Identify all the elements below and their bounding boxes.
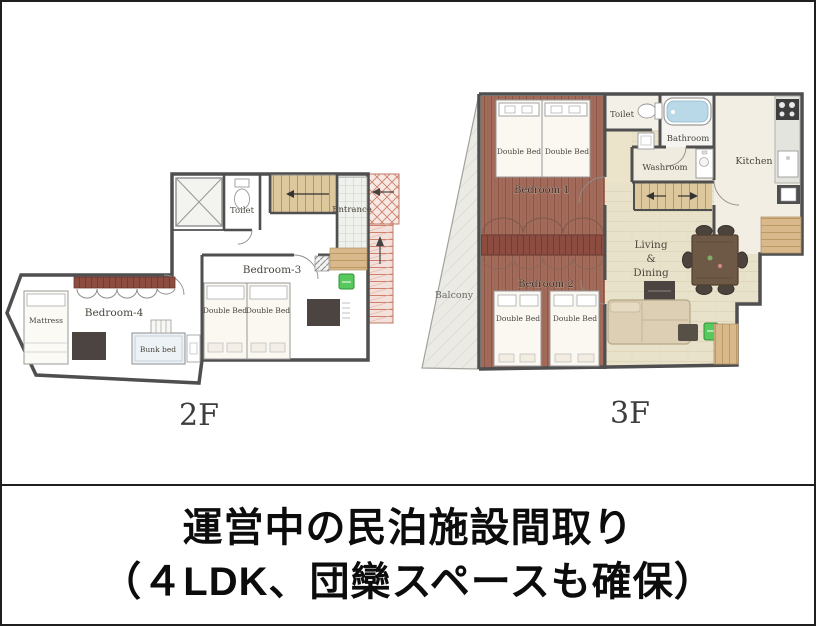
closet [74,277,175,288]
elevator-shaft [176,178,222,226]
hall-floor [605,130,632,182]
room-bedroom-4: Bedroom-4 Mattress Bunk bed [21,275,200,364]
sofa [608,300,690,344]
accent-chair [339,274,354,289]
bed-label: Double Bed [497,147,541,156]
bunk-bed: Bunk bed [132,320,185,364]
room-label-bathroom: Bathroom [667,134,710,144]
room-label-bedroom-2: Bedroom-2 [518,279,574,290]
stairs-external-2f [368,174,399,323]
fridge-alcove [777,185,800,204]
pillow [27,294,65,306]
bed-label: Double Bed [545,147,589,156]
dresser [72,332,106,360]
side-table [187,335,200,362]
floor-label-2f: 2F [179,398,219,433]
room-toilet-2f: Toilet [224,174,260,244]
living-label-line3: Dining [633,267,669,279]
double-bed: Double Bed [203,283,247,359]
closet-scallops [77,289,175,298]
image-frame: Toilet Entrance [0,0,816,626]
room-label-toilet-2f: Toilet [230,206,255,216]
divider-closet [481,235,605,255]
double-bed: Double Bed [542,100,590,177]
bunk-bed-label: Bunk bed [140,345,176,354]
kitchen-sink-icon [778,151,798,177]
double-bed: Double Bed [494,291,541,366]
pillow [520,295,538,306]
caption-line-1: 運営中の民泊施設間取り [183,503,634,553]
washbasin-icon [638,133,654,149]
bed-label: Double Bed [203,306,247,315]
sink-icon [696,149,713,178]
mattress-bed: Mattress [24,291,68,364]
floor-label-3f: 3F [610,396,650,431]
wood-deck [714,324,738,364]
floor-plans-panel: Toilet Entrance [2,2,814,484]
room-label-kitchen: Kitchen [735,156,772,167]
dining-table [692,235,738,285]
shelf-lines [342,303,350,318]
room-label-balcony: Balcony [435,290,474,301]
double-bed: Double Bed [550,291,599,366]
room-bedroom-3: Bedroom-3 Double Bed Double Bed [203,264,354,359]
room-entrance-2f: Entrance [332,174,372,250]
ottoman [678,324,698,341]
balcony: Balcony [422,94,479,369]
bathtub-icon [664,98,711,125]
living-label-line1: Living [634,239,667,251]
double-bed: Double Bed [246,283,290,359]
room-label-toilet-3f: Toilet [610,110,635,120]
bed-label: Double Bed [496,314,540,323]
pillow [577,295,596,306]
stove-icon [776,99,799,120]
pillow [498,295,516,306]
wood-shelf [330,248,367,270]
caption: 運営中の民泊施設間取り （４LDK、団欒スペースも確保） [2,484,814,624]
stairs-3f [634,182,712,210]
toilet-icon [235,179,250,209]
room-label-washroom: Washroom [642,163,687,173]
tv-cabinet [307,299,340,326]
caption-line-2: （４LDK、団欒スペースも確保） [101,557,714,607]
double-bed: Double Bed [496,100,542,177]
stairs-internal-2f [270,174,337,213]
door-arc [238,230,252,244]
cushion [610,302,640,312]
floor-plan-2f: Toilet Entrance [7,174,399,433]
room-bathroom: Bathroom [664,98,711,144]
pillow [207,286,244,299]
pillow [250,286,287,299]
ladder-icon [151,320,171,333]
wood-deck [761,217,801,253]
room-label-bedroom-1: Bedroom-1 [514,185,570,196]
bed-label: Double Bed [246,306,290,315]
hatched-shaft [315,256,329,271]
dining-set [683,226,748,295]
living-label-line2: & [646,253,655,265]
bed-label: Double Bed [553,314,597,323]
toilet-icon [638,103,662,119]
floor-plan-3f: Balcony [422,94,802,431]
room-label-bedroom-3: Bedroom-3 [243,264,302,276]
room-label-entrance: Entrance [332,205,372,215]
room-label-bedroom-4: Bedroom-4 [85,307,144,319]
mattress-label: Mattress [29,316,63,325]
pillow [554,295,573,306]
